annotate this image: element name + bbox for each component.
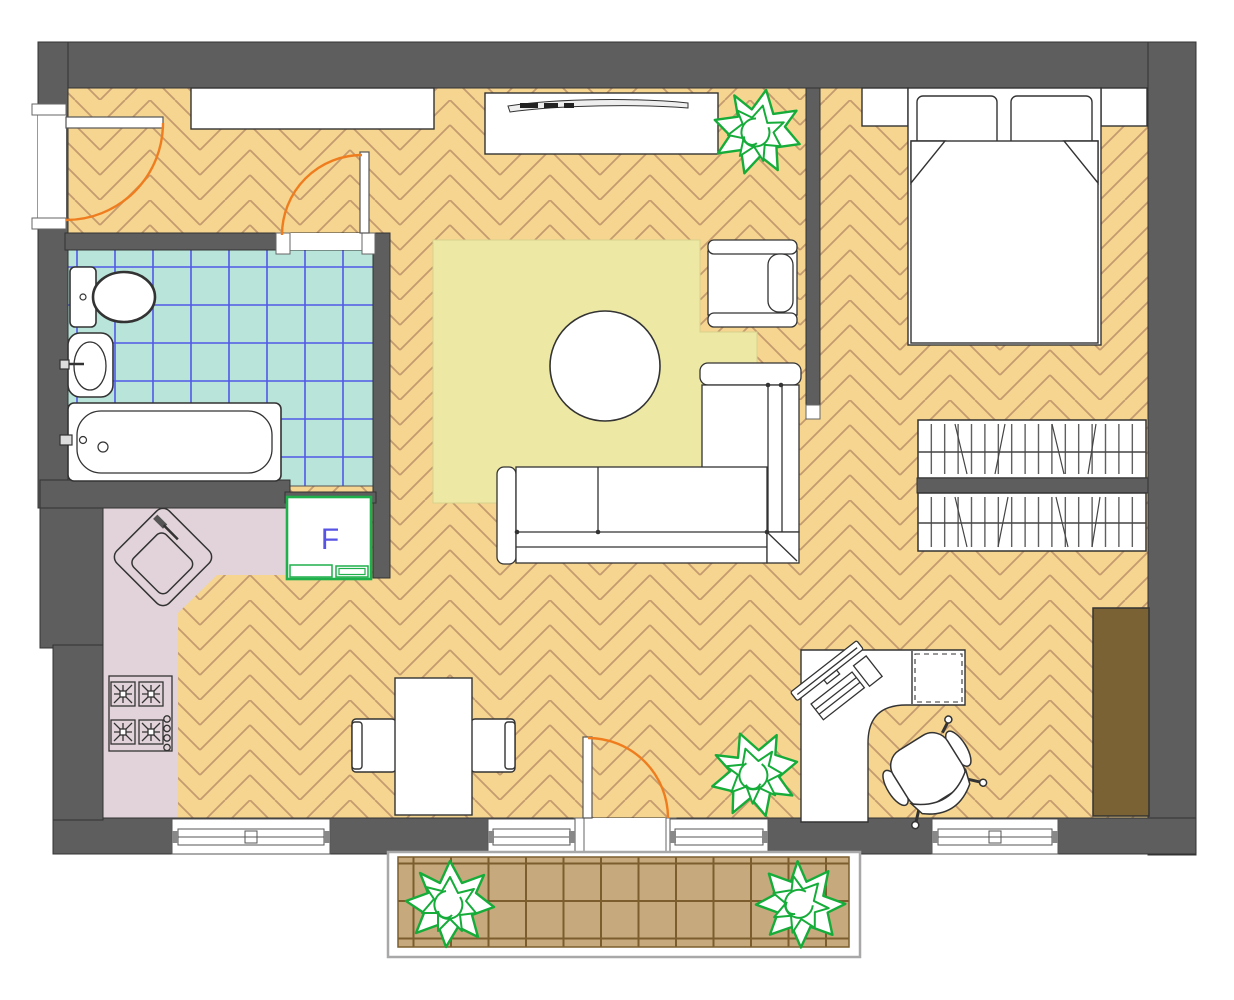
wall-right [1148,42,1196,855]
entry-jamb-bottom [32,218,66,229]
closet-bedroom-side [918,420,1146,478]
window-kitchen [172,819,330,854]
burner-2 [139,682,163,706]
dining-chair-right [471,719,515,772]
entry-jamb-top [32,104,66,115]
closet-living-side [918,493,1146,551]
toilet [70,267,155,327]
bathroom-sink [60,333,113,397]
fridge: F [287,497,371,579]
burner-1 [111,682,135,706]
bathroom-door-opening [290,233,362,250]
wall-bathroom-right [373,233,390,578]
wall-left-mid [40,505,103,648]
floor-plan: F [0,0,1234,1000]
window-workspace [932,819,1058,854]
balcony [388,843,862,965]
bathroom-jamb-right [362,233,375,254]
bathroom-jamb-left [276,233,290,254]
blanket [911,141,1098,343]
balcony-door-leaf [583,737,592,818]
sink-faucet [60,360,69,369]
nightstand-right [1101,88,1147,126]
closet-partition-wall [917,478,1148,493]
nightstand-left [862,88,908,126]
bathtub [60,403,281,481]
wall-bathroom-bottom [40,480,290,508]
wall-bedroom [806,88,820,418]
coffee-table [550,311,660,421]
hallway-closet [191,88,434,129]
dining-chair-left [352,719,396,772]
dining-table [395,678,472,815]
tv-stand [485,93,718,154]
bathtub-faucet [60,435,72,445]
burner-4 [139,720,163,744]
chair-backrest [505,722,515,769]
wall-top [38,42,1196,88]
armchair [708,240,797,327]
balcony-door-opening [578,818,670,855]
wardrobe-tall [1093,608,1149,816]
entry-door-leaf [66,117,163,128]
floor-plan-canvas: F [0,0,1234,1000]
window-dining-left [488,819,575,854]
pillow-left [917,96,997,148]
double-bed [908,88,1101,345]
bedroom-passage-cap [806,405,820,419]
armchair-cushion [768,254,793,312]
entry-door-opening [38,112,66,223]
chair-backrest [352,722,362,769]
wardrobe-closets [917,420,1148,551]
wall-left-lower [53,645,103,820]
sofa-armrest-left [497,467,516,564]
fridge-label: F [321,523,339,556]
pillow-right [1011,96,1092,148]
bathtub-drain [98,442,108,452]
sofa-seat-horizontal [516,467,767,563]
bathroom-door-leaf [360,152,369,233]
sofa-armrest-top [700,363,801,385]
window-dining-right [670,819,768,854]
burner-3 [111,720,135,744]
